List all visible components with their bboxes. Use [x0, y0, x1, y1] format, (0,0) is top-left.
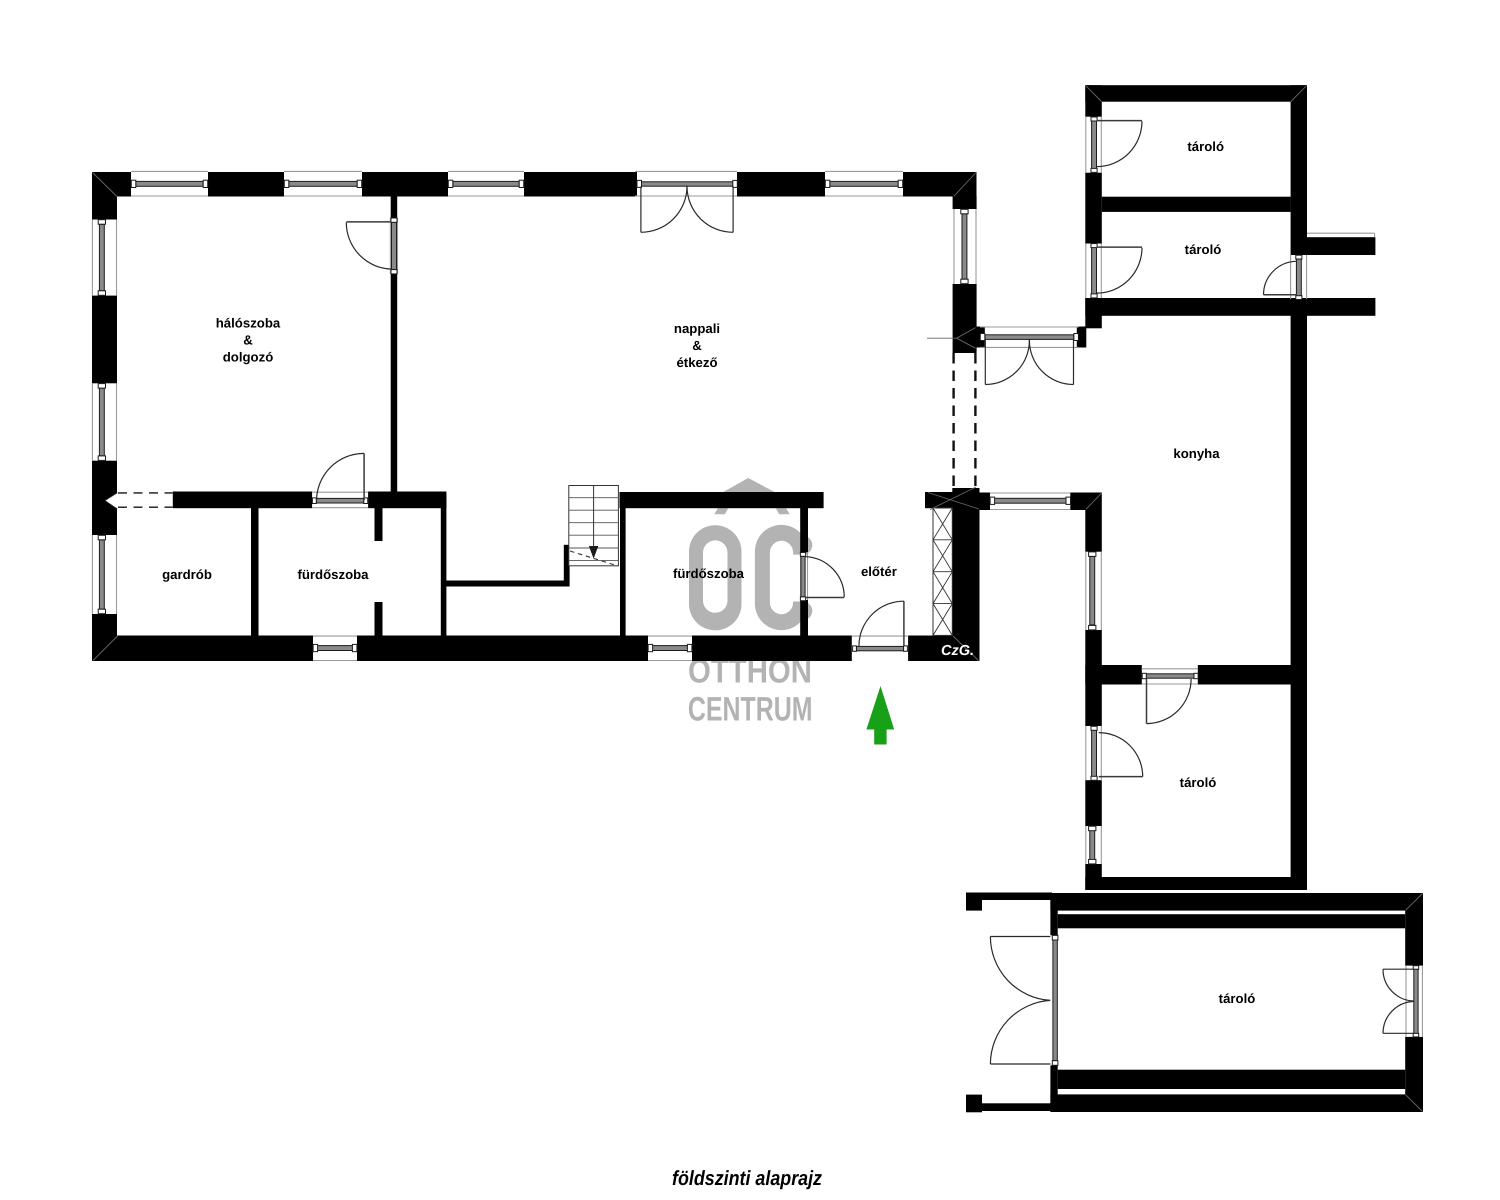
svg-text:hálószoba: hálószoba [216, 316, 281, 331]
svg-text:fürdőszoba: fürdőszoba [297, 567, 369, 582]
svg-text:tároló: tároló [1180, 775, 1217, 790]
svg-text:tároló: tároló [1187, 139, 1224, 154]
svg-text:&: & [243, 333, 253, 348]
svg-text:étkező: étkező [676, 355, 717, 370]
svg-text:dolgozó: dolgozó [223, 350, 274, 365]
svg-text:földszinti alaprajz: földszinti alaprajz [672, 1167, 823, 1190]
svg-text:gardrób: gardrób [162, 567, 212, 582]
svg-text:&: & [692, 338, 702, 353]
svg-text:fürdőszoba: fürdőszoba [673, 566, 745, 581]
svg-text:konyha: konyha [1173, 446, 1220, 461]
svg-text:tároló: tároló [1219, 991, 1256, 1006]
svg-text:nappali: nappali [674, 321, 720, 336]
svg-text:előtér: előtér [861, 564, 897, 579]
svg-text:CENTRUM: CENTRUM [688, 691, 813, 729]
svg-text:tároló: tároló [1185, 242, 1222, 257]
svg-text:CzG.: CzG. [941, 643, 974, 659]
